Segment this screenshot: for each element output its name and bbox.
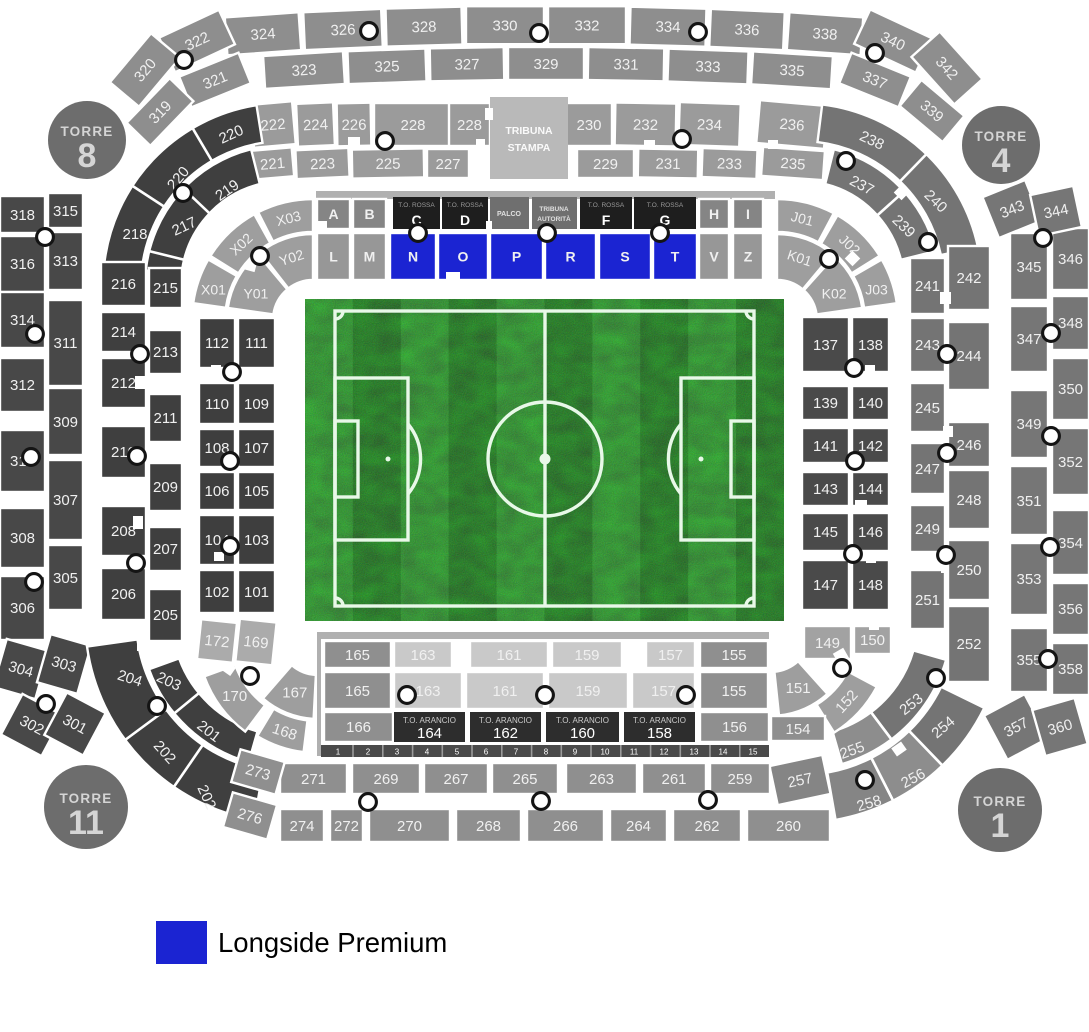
- svg-text:AUTORITÀ: AUTORITÀ: [537, 214, 571, 223]
- svg-text:348: 348: [1058, 315, 1083, 332]
- svg-text:328: 328: [411, 19, 436, 37]
- svg-text:139: 139: [813, 395, 838, 412]
- svg-text:311: 311: [54, 335, 78, 352]
- svg-text:5: 5: [455, 748, 460, 757]
- svg-text:335: 335: [779, 62, 805, 80]
- svg-text:315: 315: [53, 203, 78, 220]
- svg-text:101: 101: [244, 584, 269, 601]
- svg-text:N: N: [408, 248, 418, 264]
- svg-text:165: 165: [345, 683, 370, 700]
- svg-text:269: 269: [373, 771, 398, 788]
- svg-text:1: 1: [336, 748, 341, 757]
- svg-text:7: 7: [514, 748, 519, 757]
- svg-text:T.O. ARANCIO: T.O. ARANCIO: [633, 716, 686, 725]
- svg-text:D: D: [460, 212, 470, 228]
- svg-text:270: 270: [397, 818, 422, 835]
- svg-text:164: 164: [417, 725, 442, 742]
- svg-text:15: 15: [749, 748, 758, 757]
- svg-text:144: 144: [858, 481, 883, 498]
- svg-text:148: 148: [858, 577, 883, 594]
- svg-text:6: 6: [484, 748, 489, 757]
- svg-text:265: 265: [512, 771, 537, 788]
- svg-text:338: 338: [812, 25, 838, 44]
- svg-text:T.O. ARANCIO: T.O. ARANCIO: [479, 716, 532, 725]
- svg-text:3: 3: [395, 748, 400, 757]
- svg-text:110: 110: [205, 396, 229, 413]
- svg-text:248: 248: [956, 492, 981, 509]
- svg-text:264: 264: [626, 818, 651, 835]
- svg-text:14: 14: [719, 748, 728, 757]
- svg-text:206: 206: [111, 586, 136, 603]
- svg-text:249: 249: [915, 521, 940, 538]
- svg-text:356: 356: [1058, 601, 1083, 618]
- svg-text:106: 106: [204, 483, 229, 500]
- svg-text:157: 157: [658, 647, 683, 664]
- svg-text:T.O. ROSSA: T.O. ROSSA: [398, 202, 435, 209]
- svg-text:241: 241: [915, 278, 940, 295]
- svg-text:155: 155: [721, 647, 746, 664]
- svg-text:216: 216: [111, 276, 136, 293]
- svg-text:260: 260: [776, 818, 801, 835]
- svg-text:K02: K02: [822, 285, 847, 301]
- svg-text:353: 353: [1016, 571, 1041, 588]
- svg-text:223: 223: [310, 155, 336, 173]
- svg-text:318: 318: [10, 207, 35, 224]
- svg-text:8: 8: [544, 748, 549, 757]
- svg-text:162: 162: [493, 725, 518, 742]
- svg-text:325: 325: [374, 58, 400, 76]
- svg-text:214: 214: [111, 324, 136, 341]
- svg-text:T.O. ROSSA: T.O. ROSSA: [647, 202, 684, 209]
- svg-text:163: 163: [410, 647, 435, 664]
- svg-text:244: 244: [956, 348, 981, 365]
- svg-text:138: 138: [858, 337, 883, 354]
- svg-text:161: 161: [496, 647, 521, 664]
- svg-text:215: 215: [153, 280, 178, 297]
- svg-text:155: 155: [721, 683, 746, 700]
- svg-text:Y01: Y01: [243, 285, 268, 301]
- svg-text:13: 13: [690, 748, 699, 757]
- svg-text:229: 229: [593, 156, 618, 173]
- svg-text:261: 261: [661, 771, 686, 788]
- svg-text:305: 305: [53, 570, 78, 587]
- svg-text:331: 331: [613, 56, 638, 73]
- svg-text:327: 327: [454, 56, 479, 73]
- svg-text:B: B: [364, 206, 374, 222]
- svg-text:160: 160: [570, 725, 595, 742]
- svg-text:242: 242: [956, 270, 981, 287]
- svg-text:158: 158: [647, 725, 672, 742]
- svg-text:309: 309: [53, 414, 78, 431]
- svg-text:355: 355: [1016, 652, 1041, 669]
- svg-text:143: 143: [813, 481, 838, 498]
- svg-text:151: 151: [786, 680, 811, 697]
- svg-text:P: P: [512, 248, 521, 264]
- svg-text:230: 230: [576, 117, 601, 134]
- svg-text:11: 11: [68, 804, 104, 842]
- svg-text:102: 102: [204, 584, 229, 601]
- svg-text:233: 233: [717, 155, 743, 173]
- svg-text:326: 326: [330, 21, 356, 39]
- svg-text:T.O. ARANCIO: T.O. ARANCIO: [556, 716, 609, 725]
- svg-text:231: 231: [655, 156, 680, 173]
- svg-text:161: 161: [492, 683, 517, 700]
- svg-text:1: 1: [991, 807, 1010, 845]
- svg-text:S: S: [620, 248, 629, 264]
- svg-text:V: V: [709, 248, 719, 264]
- svg-text:266: 266: [553, 818, 578, 835]
- svg-text:I: I: [746, 206, 750, 222]
- svg-text:345: 345: [1016, 259, 1041, 276]
- svg-text:4: 4: [425, 748, 430, 757]
- svg-text:211: 211: [154, 410, 178, 427]
- svg-text:218: 218: [122, 226, 147, 243]
- svg-text:145: 145: [813, 524, 838, 541]
- svg-text:105: 105: [244, 483, 269, 500]
- svg-text:149: 149: [815, 635, 840, 652]
- svg-text:334: 334: [655, 19, 680, 37]
- svg-text:163: 163: [415, 683, 440, 700]
- svg-text:267: 267: [443, 771, 468, 788]
- svg-text:347: 347: [1016, 331, 1041, 348]
- svg-text:PALCO: PALCO: [497, 211, 522, 218]
- svg-text:142: 142: [858, 438, 883, 455]
- svg-text:225: 225: [375, 156, 400, 173]
- svg-text:A: A: [328, 206, 338, 222]
- svg-text:T.O. ROSSA: T.O. ROSSA: [447, 202, 484, 209]
- svg-text:346: 346: [1058, 251, 1083, 268]
- svg-text:146: 146: [858, 524, 883, 541]
- svg-text:147: 147: [813, 577, 838, 594]
- svg-text:103: 103: [244, 532, 269, 549]
- svg-text:9: 9: [573, 748, 578, 757]
- svg-text:170: 170: [222, 688, 247, 705]
- svg-text:159: 159: [574, 647, 599, 664]
- svg-text:TRIBUNA: TRIBUNA: [539, 206, 569, 213]
- svg-text:TRIBUNA: TRIBUNA: [505, 125, 553, 137]
- svg-text:349: 349: [1016, 416, 1041, 433]
- svg-text:F: F: [602, 212, 611, 228]
- svg-text:207: 207: [153, 541, 178, 558]
- svg-text:156: 156: [722, 719, 747, 736]
- svg-text:Z: Z: [744, 248, 753, 264]
- svg-text:312: 312: [10, 377, 35, 394]
- svg-text:107: 107: [244, 440, 269, 457]
- svg-text:232: 232: [633, 117, 658, 134]
- svg-text:T.O. ROSSA: T.O. ROSSA: [588, 202, 625, 209]
- svg-text:109: 109: [244, 396, 269, 413]
- svg-text:228: 228: [457, 117, 482, 134]
- svg-text:332: 332: [574, 17, 599, 34]
- svg-text:154: 154: [785, 721, 810, 738]
- svg-text:236: 236: [779, 116, 805, 135]
- svg-text:272: 272: [334, 818, 359, 835]
- svg-text:141: 141: [813, 438, 838, 455]
- svg-text:205: 205: [153, 607, 178, 624]
- svg-text:T.O. ARANCIO: T.O. ARANCIO: [403, 716, 456, 725]
- svg-text:358: 358: [1058, 661, 1083, 678]
- svg-text:111: 111: [245, 335, 268, 352]
- svg-text:169: 169: [243, 633, 270, 653]
- svg-text:Longside Premium: Longside Premium: [218, 927, 447, 958]
- svg-text:330: 330: [492, 17, 517, 34]
- svg-text:323: 323: [291, 61, 317, 79]
- svg-text:137: 137: [813, 337, 838, 354]
- svg-text:329: 329: [533, 56, 558, 73]
- svg-text:157: 157: [651, 683, 676, 700]
- svg-text:235: 235: [780, 155, 806, 174]
- svg-text:234: 234: [697, 116, 723, 134]
- svg-text:209: 209: [153, 479, 178, 496]
- svg-text:12: 12: [660, 748, 669, 757]
- svg-text:313: 313: [53, 253, 78, 270]
- svg-text:308: 308: [10, 530, 35, 547]
- svg-text:H: H: [709, 206, 719, 222]
- svg-text:165: 165: [345, 647, 370, 664]
- svg-text:336: 336: [734, 21, 760, 39]
- svg-text:STAMPA: STAMPA: [508, 142, 551, 154]
- svg-text:352: 352: [1058, 454, 1083, 471]
- svg-text:167: 167: [282, 685, 307, 702]
- svg-text:351: 351: [1016, 493, 1041, 510]
- svg-text:306: 306: [10, 600, 35, 617]
- svg-text:140: 140: [858, 395, 883, 412]
- svg-text:228: 228: [400, 117, 425, 134]
- svg-text:2: 2: [366, 748, 371, 757]
- svg-text:M: M: [364, 248, 376, 264]
- svg-text:4: 4: [992, 142, 1011, 180]
- svg-text:316: 316: [10, 256, 35, 273]
- svg-text:208: 208: [111, 523, 136, 540]
- svg-text:271: 271: [301, 771, 326, 788]
- svg-text:259: 259: [727, 771, 752, 788]
- svg-text:L: L: [329, 248, 338, 264]
- svg-text:227: 227: [435, 156, 460, 173]
- svg-text:R: R: [565, 248, 575, 264]
- svg-text:221: 221: [259, 155, 285, 174]
- svg-text:245: 245: [915, 400, 940, 417]
- svg-text:307: 307: [53, 492, 78, 509]
- svg-text:X01: X01: [201, 282, 226, 298]
- svg-text:274: 274: [289, 818, 314, 835]
- svg-text:112: 112: [205, 335, 229, 352]
- svg-text:262: 262: [694, 818, 719, 835]
- svg-text:O: O: [458, 248, 469, 264]
- svg-text:250: 250: [956, 562, 981, 579]
- svg-text:263: 263: [589, 771, 614, 788]
- svg-text:243: 243: [915, 337, 940, 354]
- svg-text:172: 172: [204, 632, 231, 652]
- svg-text:246: 246: [956, 437, 981, 454]
- svg-text:11: 11: [630, 748, 639, 757]
- svg-text:247: 247: [915, 461, 940, 478]
- svg-text:150: 150: [860, 632, 885, 649]
- svg-text:166: 166: [346, 719, 371, 736]
- svg-text:226: 226: [341, 117, 366, 134]
- svg-text:222: 222: [260, 116, 286, 135]
- svg-text:324: 324: [250, 25, 276, 44]
- svg-text:251: 251: [915, 592, 940, 609]
- svg-text:J03: J03: [865, 282, 888, 298]
- svg-text:350: 350: [1058, 381, 1083, 398]
- svg-text:333: 333: [695, 58, 721, 76]
- svg-text:224: 224: [303, 116, 329, 134]
- svg-text:212: 212: [111, 375, 136, 392]
- svg-text:10: 10: [601, 748, 610, 757]
- svg-text:252: 252: [956, 636, 981, 653]
- svg-text:8: 8: [78, 137, 97, 175]
- svg-text:213: 213: [153, 344, 178, 361]
- svg-text:268: 268: [476, 818, 501, 835]
- svg-text:159: 159: [575, 683, 600, 700]
- svg-text:354: 354: [1058, 535, 1083, 552]
- svg-text:T: T: [671, 248, 680, 264]
